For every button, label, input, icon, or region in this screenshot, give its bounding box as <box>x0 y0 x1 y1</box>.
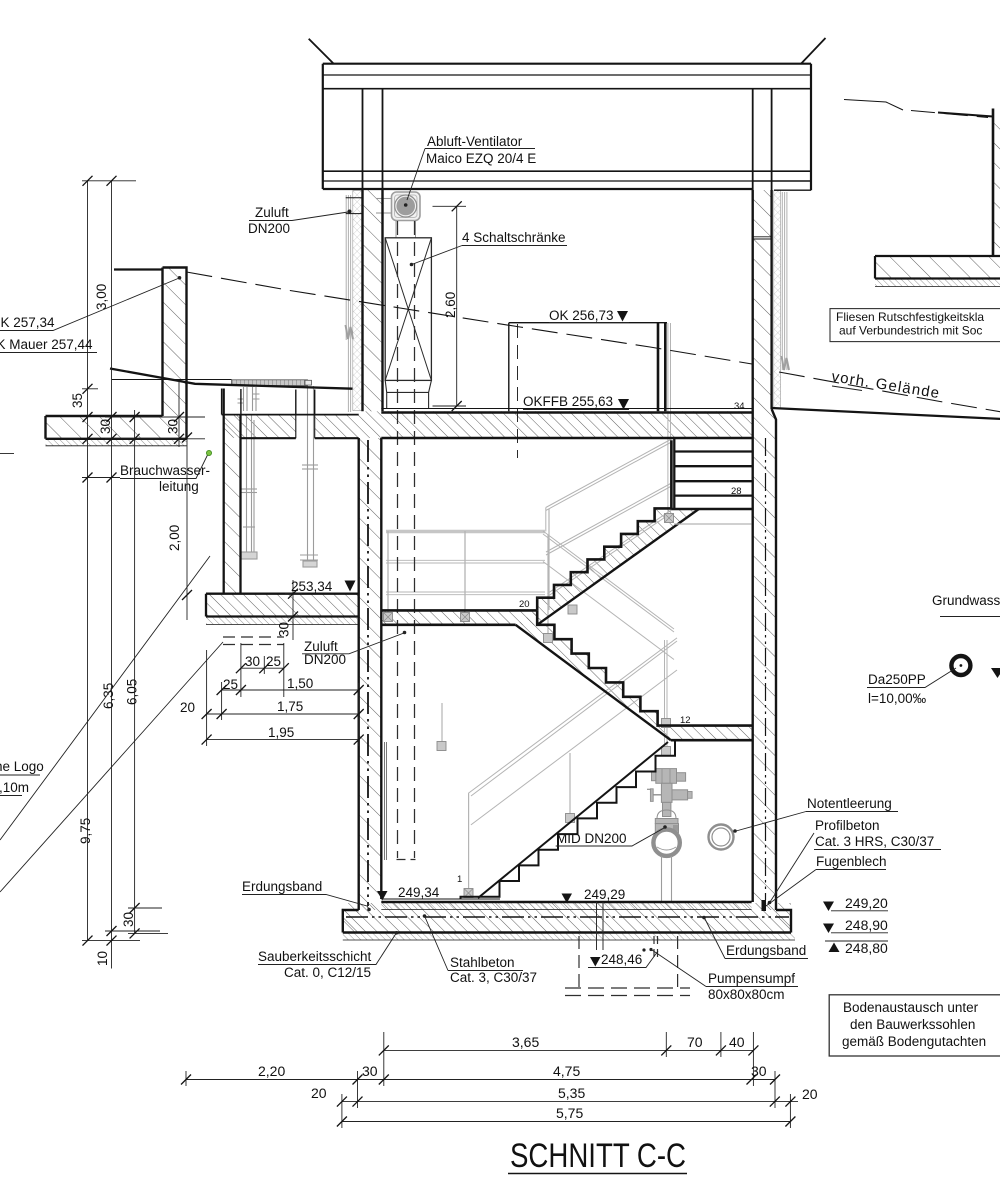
svg-text:Grundwasser: Grundwasser <box>932 593 1000 608</box>
svg-text:den Bauwerkssohlen: den Bauwerkssohlen <box>850 1017 975 1032</box>
svg-text:80x80x80cm: 80x80x80cm <box>708 987 785 1002</box>
svg-text:Profilbeton: Profilbeton <box>815 818 880 833</box>
svg-text:30: 30 <box>121 912 136 927</box>
svg-text:249,20: 249,20 <box>845 895 888 911</box>
svg-text:6,05: 6,05 <box>125 679 140 705</box>
svg-text:30: 30 <box>751 1063 767 1079</box>
svg-text:248,90: 248,90 <box>845 917 888 933</box>
svg-text:5,75: 5,75 <box>556 1105 583 1121</box>
svg-text:Cat. 3 HRS, C30/37: Cat. 3 HRS, C30/37 <box>815 834 934 849</box>
svg-text:34: 34 <box>734 401 745 412</box>
svg-text:Stahlbeton: Stahlbeton <box>450 955 515 970</box>
svg-text:Da250PP: Da250PP <box>868 672 926 687</box>
svg-text:40: 40 <box>729 1034 745 1050</box>
svg-text:9,75: 9,75 <box>78 818 93 844</box>
svg-text:Fliesen Rutschfestigkeitskla: Fliesen Rutschfestigkeitskla <box>836 310 984 324</box>
svg-text:2,60: 2,60 <box>443 292 458 318</box>
svg-text:28: 28 <box>731 486 742 497</box>
svg-text:gemäß Bodengutachten: gemäß Bodengutachten <box>842 1034 986 1049</box>
svg-text:253,34: 253,34 <box>291 579 333 594</box>
svg-text:10: 10 <box>95 951 110 966</box>
svg-text:leitung: leitung <box>159 479 199 494</box>
svg-text:4,75: 4,75 <box>553 1063 580 1079</box>
svg-text:1: 1 <box>457 874 462 885</box>
svg-text:l=10,00‰: l=10,00‰ <box>868 691 927 706</box>
svg-text:Cat. 0, C12/15: Cat. 0, C12/15 <box>284 965 371 980</box>
svg-text:auf Verbundestrich mit Soc: auf Verbundestrich mit Soc <box>839 324 982 338</box>
svg-text:3,65: 3,65 <box>512 1034 539 1050</box>
svg-text:,10m: ,10m <box>0 780 29 795</box>
svg-text:Fugenblech: Fugenblech <box>816 854 887 869</box>
svg-text:249,34: 249,34 <box>398 885 440 900</box>
svg-text:30: 30 <box>245 654 260 669</box>
svg-text:25: 25 <box>223 677 238 692</box>
svg-text:MID DN200: MID DN200 <box>556 831 627 846</box>
svg-text:248,80: 248,80 <box>845 940 888 956</box>
svg-text:3,00: 3,00 <box>94 284 109 310</box>
svg-text:OKFFB 255,63: OKFFB 255,63 <box>523 394 613 409</box>
svg-text:Maico EZQ 20/4 E: Maico EZQ 20/4 E <box>426 151 536 166</box>
svg-text:SCHNITT C-C: SCHNITT C-C <box>510 1137 686 1175</box>
svg-text:Brauchwasser-: Brauchwasser- <box>120 463 210 478</box>
svg-text:DN200: DN200 <box>248 221 290 236</box>
svg-text:30: 30 <box>277 622 292 637</box>
svg-text:Bodenaustausch unter: Bodenaustausch unter <box>843 1000 979 1015</box>
svg-text:248,46: 248,46 <box>601 952 642 967</box>
svg-text:Cat. 3, C30/37: Cat. 3, C30/37 <box>450 970 537 985</box>
svg-text:70: 70 <box>687 1034 703 1050</box>
svg-text:Sauberkeitsschicht: Sauberkeitsschicht <box>258 949 372 964</box>
svg-text:Erdungsband: Erdungsband <box>242 879 322 894</box>
svg-text:5,35: 5,35 <box>558 1085 585 1101</box>
svg-text:Abluft-Ventilator: Abluft-Ventilator <box>427 134 523 149</box>
svg-text:OK 256,73: OK 256,73 <box>549 308 614 323</box>
svg-text:20: 20 <box>519 599 530 610</box>
svg-text:Pumpensumpf: Pumpensumpf <box>708 971 795 986</box>
svg-text:4 Schaltschränke: 4 Schaltschränke <box>462 230 566 245</box>
svg-text:Notentleerung: Notentleerung <box>807 796 892 811</box>
svg-text:20: 20 <box>802 1086 818 1102</box>
svg-text:Zuluft: Zuluft <box>255 205 289 220</box>
svg-text:1,95: 1,95 <box>268 725 294 740</box>
svg-text:2,20: 2,20 <box>258 1063 285 1079</box>
svg-text:Krane Logo: Krane Logo <box>0 759 44 774</box>
svg-text:12: 12 <box>680 715 691 726</box>
svg-text:25: 25 <box>266 654 281 669</box>
svg-text:20: 20 <box>180 700 195 715</box>
svg-text:2,00: 2,00 <box>167 525 182 551</box>
svg-text:OK Mauer 257,44: OK Mauer 257,44 <box>0 337 93 352</box>
svg-text:1,50: 1,50 <box>287 676 313 691</box>
svg-text:30: 30 <box>98 419 113 434</box>
svg-text:249,29: 249,29 <box>584 887 625 902</box>
svg-text:30: 30 <box>166 419 181 434</box>
svg-text:Erdungsband: Erdungsband <box>726 943 806 958</box>
svg-text:35: 35 <box>70 393 85 408</box>
svg-text:30: 30 <box>362 1063 378 1079</box>
svg-text:OK 257,34: OK 257,34 <box>0 315 55 330</box>
svg-text:1,75: 1,75 <box>277 699 303 714</box>
svg-text:20: 20 <box>311 1085 327 1101</box>
